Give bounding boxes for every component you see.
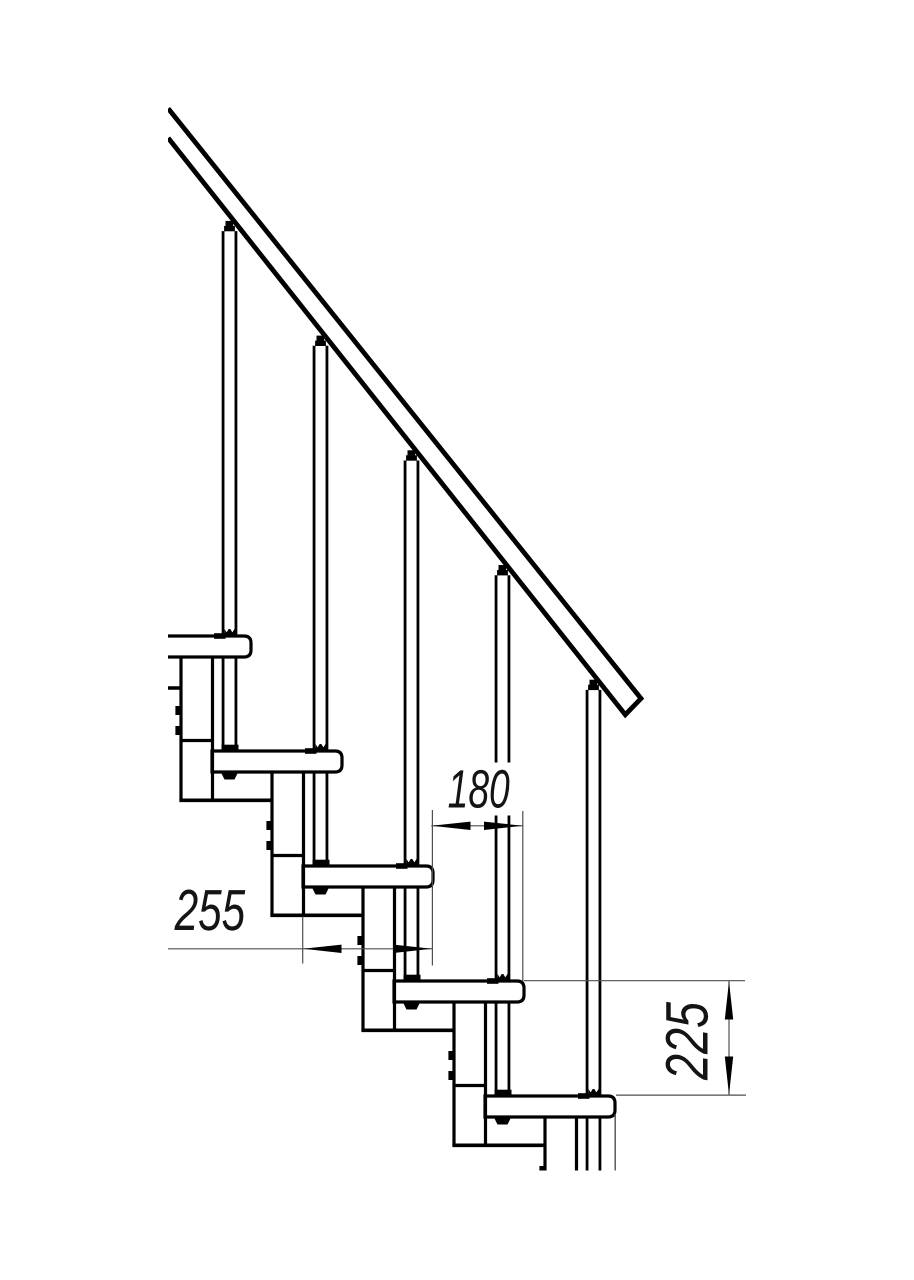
svg-text:225: 225 xyxy=(654,1001,721,1080)
svg-text:255: 255 xyxy=(174,878,246,943)
svg-text:180: 180 xyxy=(448,760,510,820)
